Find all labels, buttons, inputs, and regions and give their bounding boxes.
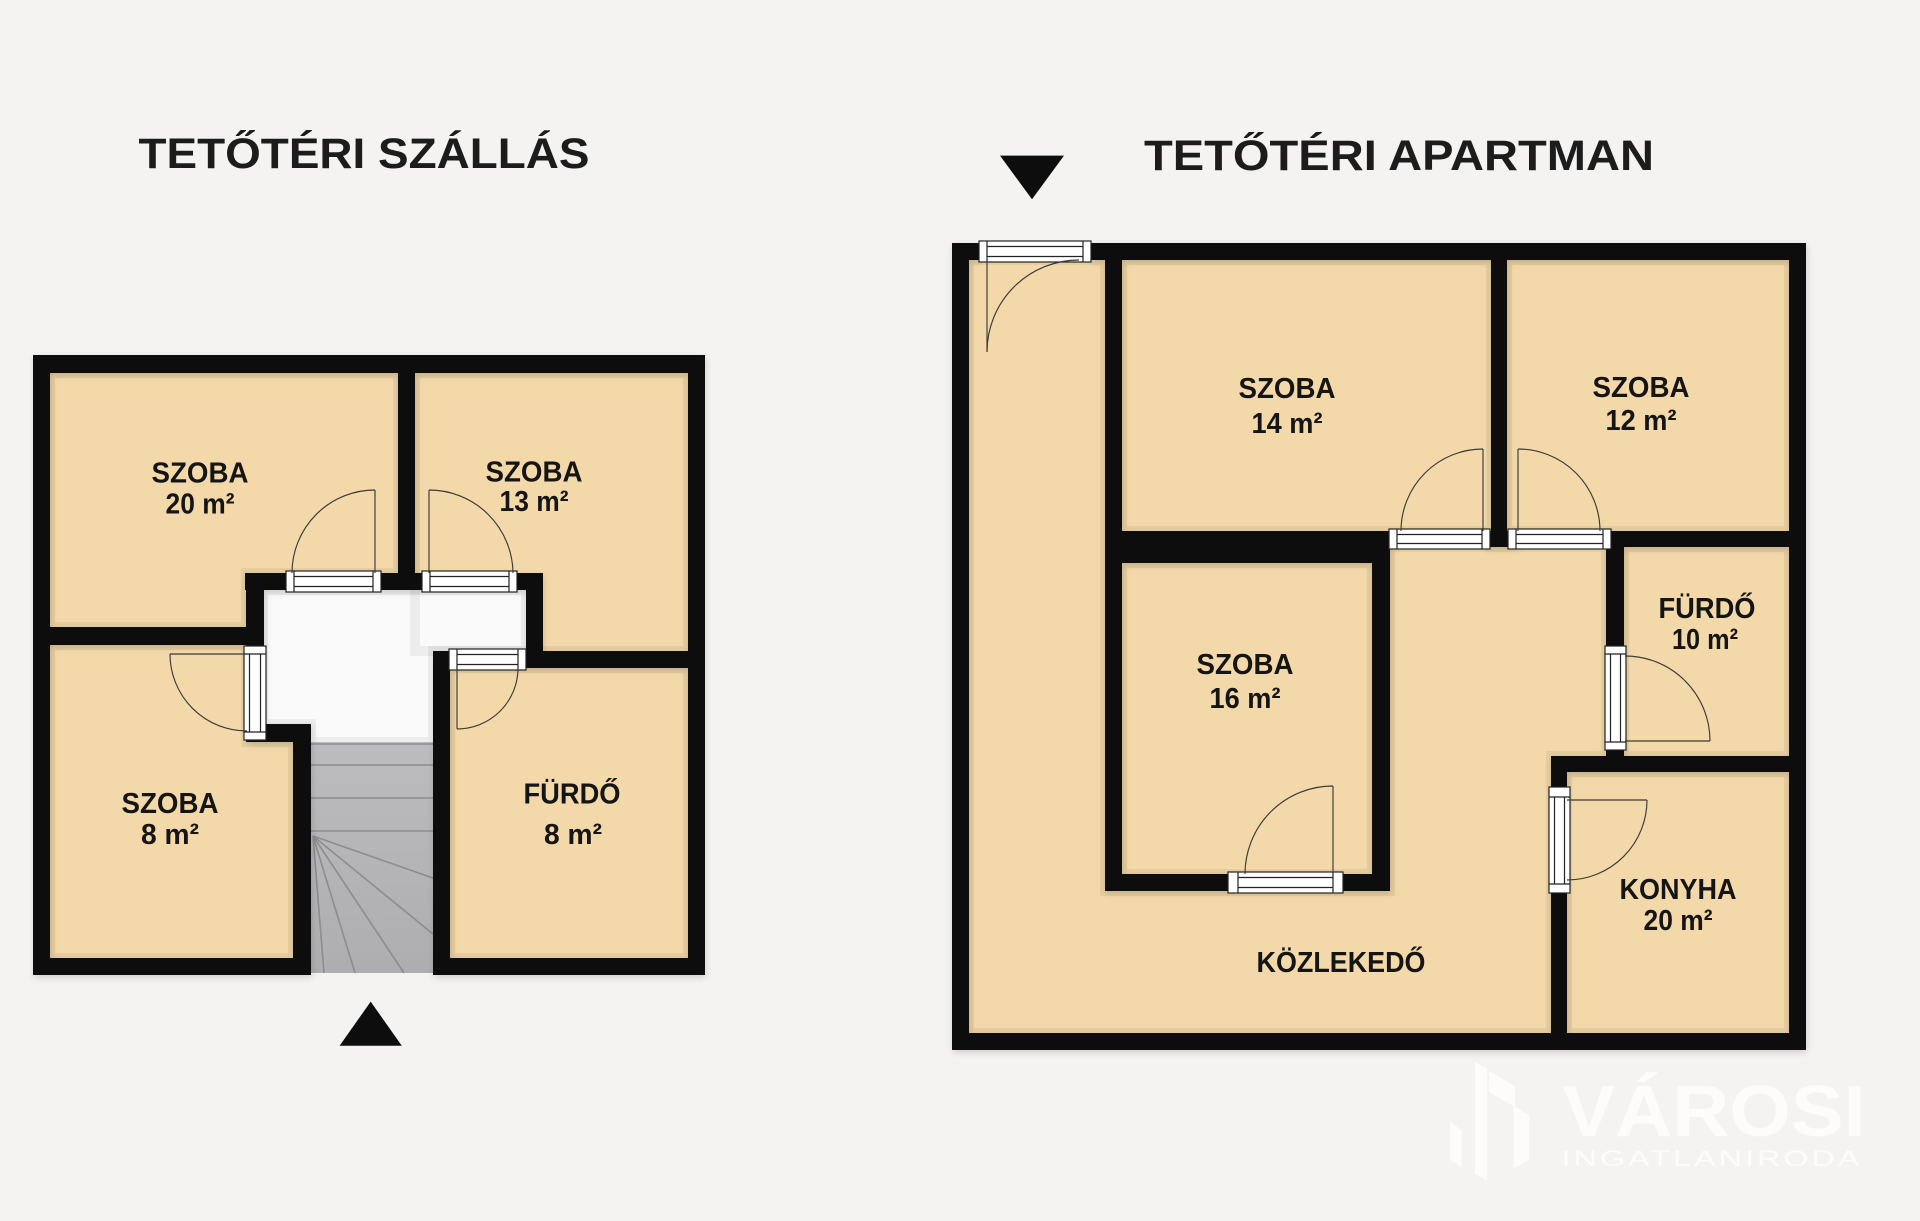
svg-text:SZOBA: SZOBA: [152, 458, 249, 490]
svg-text:10 m²: 10 m²: [1672, 624, 1738, 656]
svg-text:20 m²: 20 m²: [166, 489, 235, 521]
svg-text:VÁROSI: VÁROSI: [1563, 1072, 1866, 1152]
svg-text:SZOBA: SZOBA: [122, 788, 219, 820]
svg-text:SZOBA: SZOBA: [1239, 373, 1336, 405]
svg-text:13 m²: 13 m²: [500, 486, 569, 518]
svg-text:8 m²: 8 m²: [544, 819, 602, 851]
svg-text:KONYHA: KONYHA: [1620, 874, 1737, 906]
svg-text:20 m²: 20 m²: [1644, 905, 1713, 937]
svg-text:SZOBA: SZOBA: [1593, 372, 1690, 404]
svg-text:16 m²: 16 m²: [1210, 683, 1281, 715]
svg-text:INGATLANIRODA: INGATLANIRODA: [1562, 1146, 1863, 1171]
svg-text:KÖZLEKEDŐ: KÖZLEKEDŐ: [1257, 945, 1426, 979]
svg-text:SZOBA: SZOBA: [1197, 649, 1294, 681]
svg-text:TETŐTÉRI SZÁLLÁS: TETŐTÉRI SZÁLLÁS: [139, 130, 590, 178]
svg-text:FÜRDŐ: FÜRDŐ: [524, 777, 621, 811]
svg-text:14 m²: 14 m²: [1252, 408, 1323, 440]
svg-text:SZOBA: SZOBA: [486, 457, 583, 489]
svg-text:12 m²: 12 m²: [1606, 405, 1677, 437]
svg-text:8 m²: 8 m²: [141, 819, 199, 851]
svg-text:FÜRDŐ: FÜRDŐ: [1659, 591, 1756, 625]
svg-text:TETŐTÉRI APARTMAN: TETŐTÉRI APARTMAN: [1144, 132, 1654, 180]
